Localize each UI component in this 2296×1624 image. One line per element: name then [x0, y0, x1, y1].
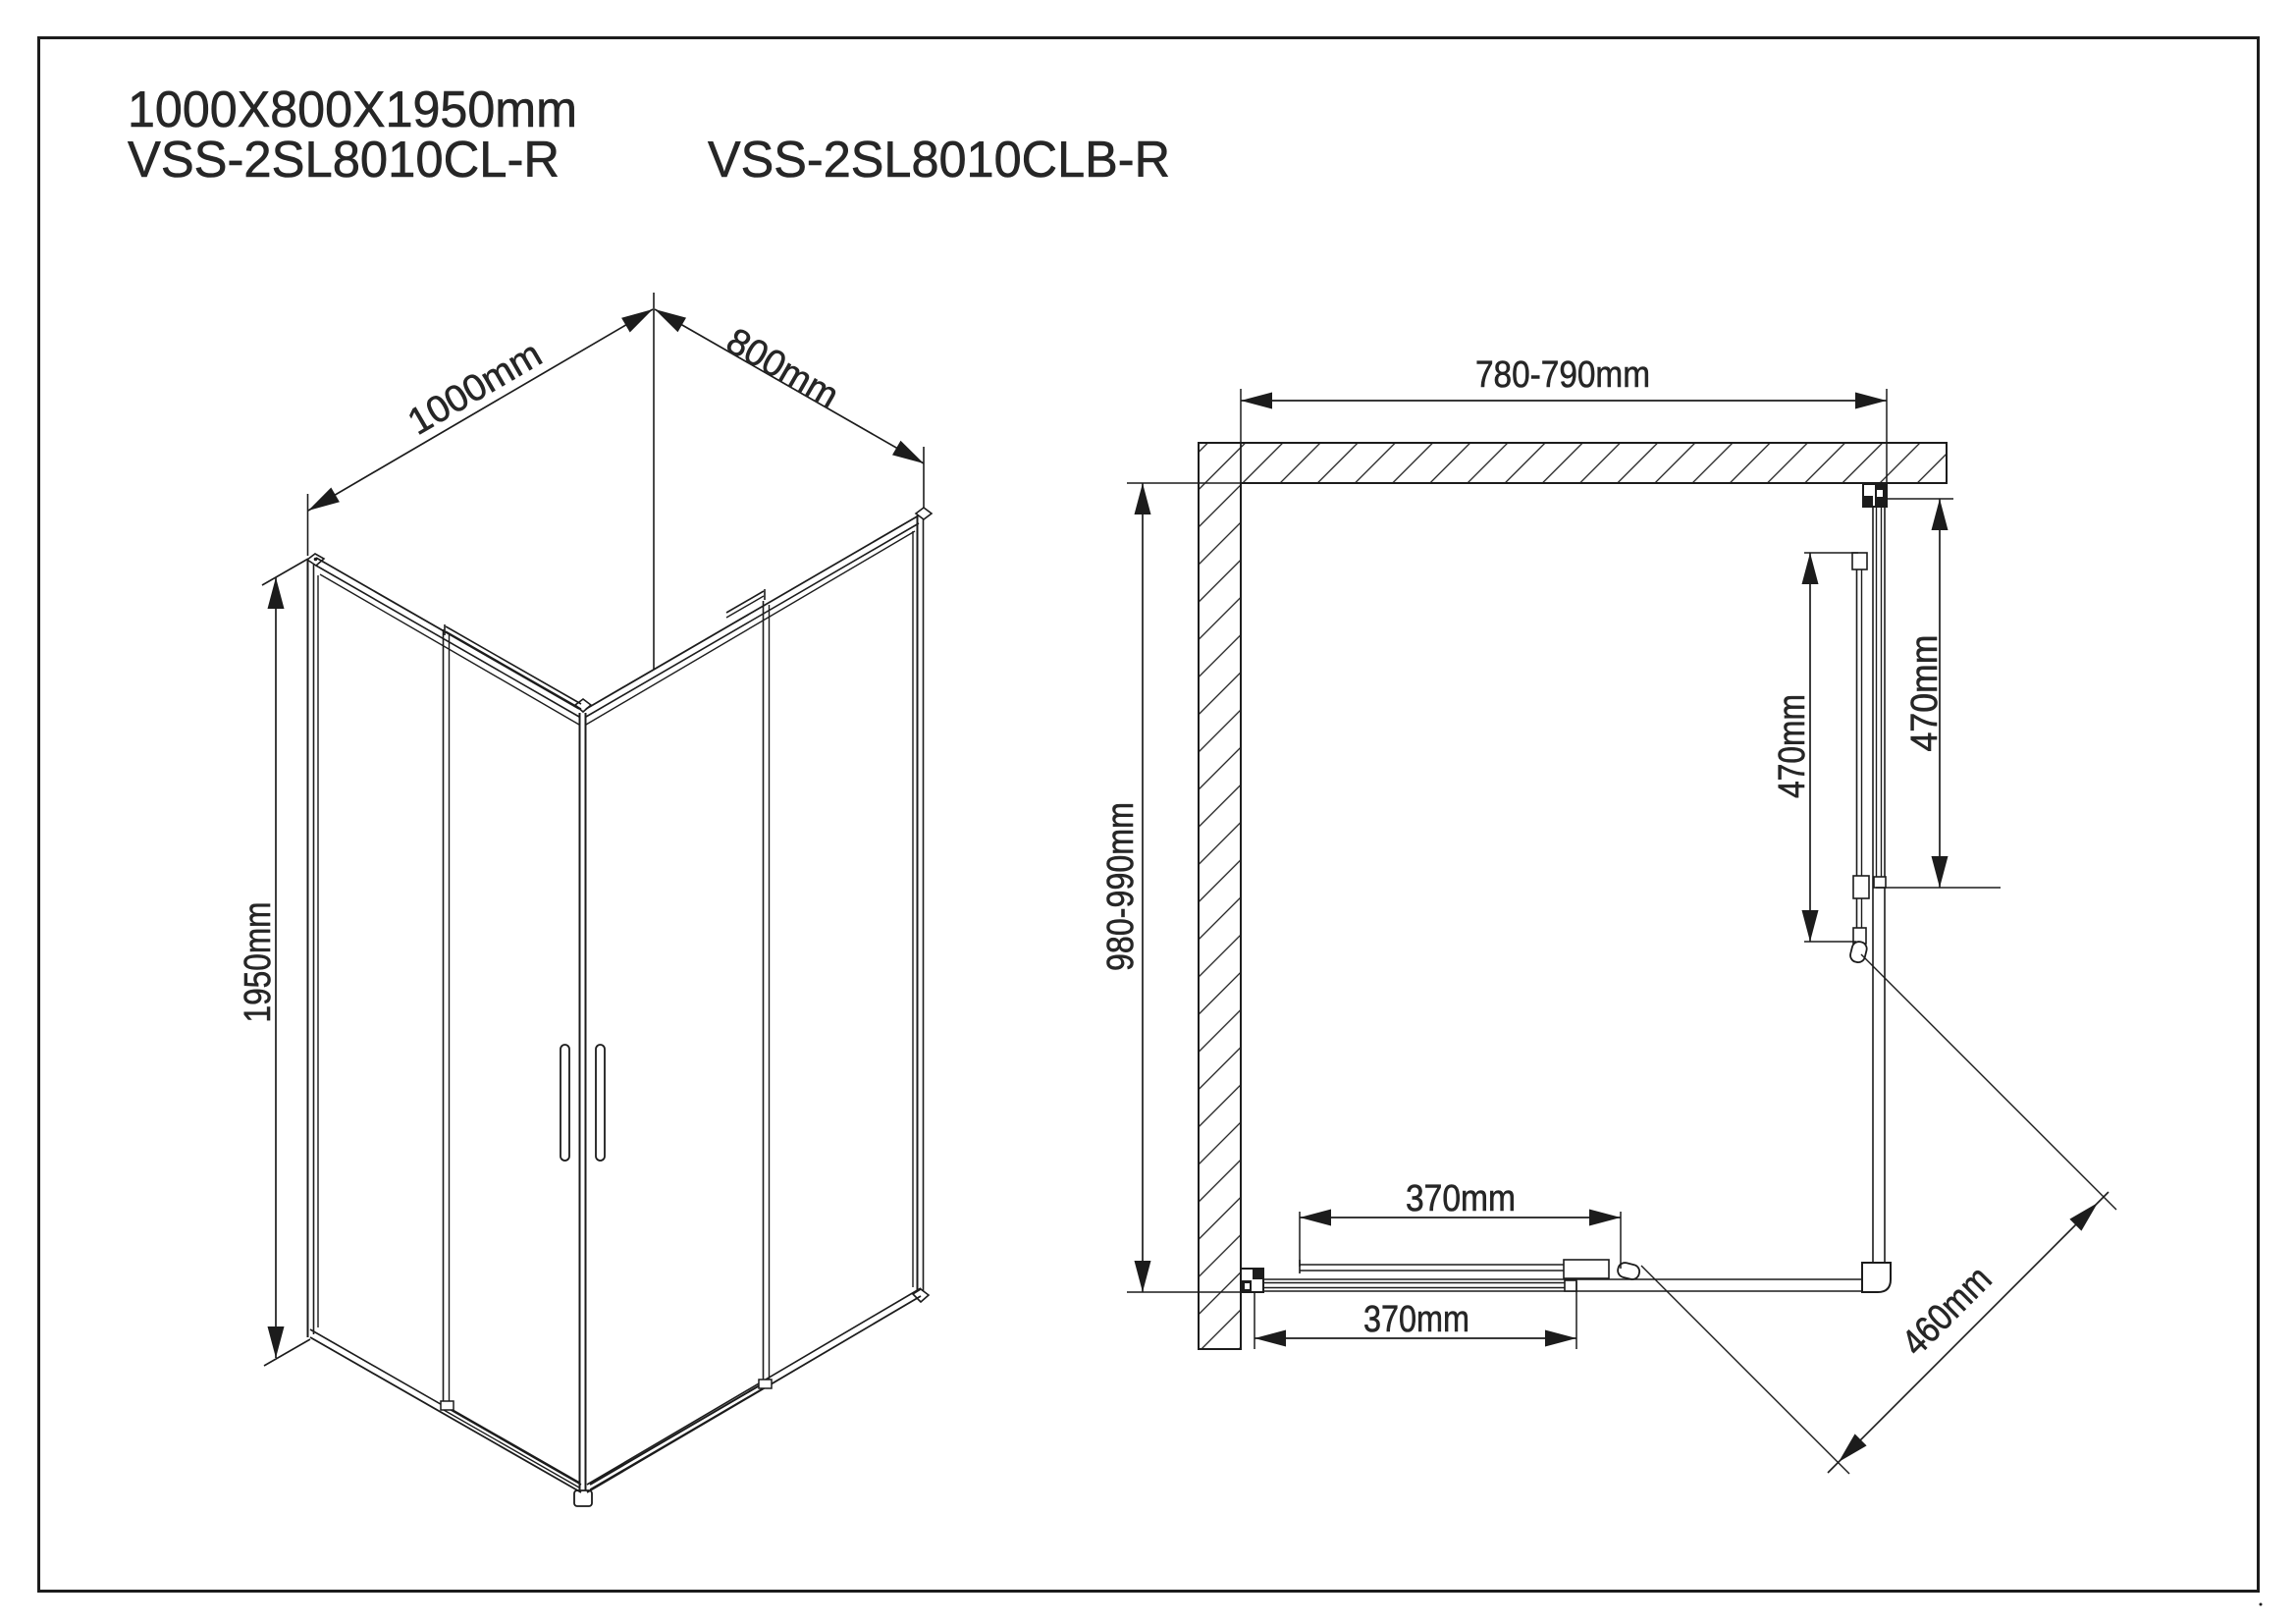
svg-text:370mm: 370mm [1406, 1178, 1516, 1219]
svg-text:VSS-2SL8010CL-R: VSS-2SL8010CL-R [128, 132, 560, 189]
svg-text:1950mm: 1950mm [238, 902, 279, 1023]
svg-text:470mm: 470mm [1772, 694, 1813, 798]
svg-text:980-990mm: 980-990mm [1100, 802, 1142, 971]
svg-text:1000X800X1950mm: 1000X800X1950mm [128, 81, 577, 138]
svg-text:780-790mm: 780-790mm [1475, 354, 1650, 396]
svg-text:370mm: 370mm [1363, 1299, 1469, 1340]
svg-text:470mm: 470mm [1904, 635, 1946, 752]
svg-text:VSS-2SL8010CLB-R: VSS-2SL8010CLB-R [708, 132, 1170, 189]
